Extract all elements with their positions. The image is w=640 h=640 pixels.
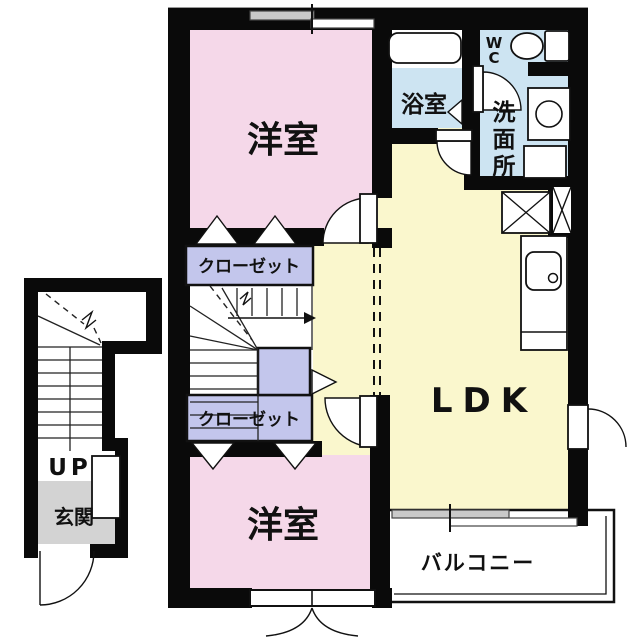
toilet-tank-icon <box>545 31 569 61</box>
wall-bottom-left <box>168 588 252 608</box>
ldk-exit-doorway <box>568 405 588 449</box>
ldk-label: LDK <box>431 381 537 421</box>
floor-plan-canvas: 洋室 洋室 LDK 浴室 W C 洗 面 所 クローゼット クローゼット バルコ… <box>0 0 640 640</box>
bedroom-top-label: 洋室 <box>247 120 319 161</box>
washroom-door-leaf <box>473 66 483 112</box>
washroom-label-1: 洗 <box>493 100 516 126</box>
shoe-cabinet-icon <box>92 456 120 518</box>
bath-label: 浴室 <box>401 91 447 118</box>
washroom-label-2: 面 <box>493 127 516 153</box>
wall-left <box>168 8 190 608</box>
balcony-label: バルコニー <box>421 551 536 575</box>
toilet-bowl-icon <box>511 33 543 59</box>
kitchen-counter <box>521 236 567 350</box>
window-bottom-swing-right <box>312 608 358 636</box>
wall-bedroomtop-right <box>372 8 392 198</box>
wall-bath-bottom <box>386 128 438 144</box>
hall-door-leaf <box>436 130 472 141</box>
ldk-exit-door-arc <box>588 409 626 447</box>
washing-machine-icon <box>528 88 570 140</box>
wc-label-c: C <box>488 49 499 67</box>
storage-box <box>258 348 310 395</box>
balcony-slider-panel-b <box>450 518 577 526</box>
entrance-label: 玄関 <box>54 505 94 529</box>
window-bottom-swing-left <box>266 608 312 636</box>
closet-top-label: クローゼット <box>198 256 300 277</box>
pipe-space <box>553 187 571 233</box>
wall-wc-bottom <box>528 62 572 76</box>
window-top-panel-b <box>311 19 374 28</box>
floor-plan-svg: 洋室 洋室 LDK 浴室 W C 洗 面 所 クローゼット クローゼット バルコ… <box>0 0 640 640</box>
bedroom-bottom-door-leaf <box>360 396 377 447</box>
bedroom-bottom-label: 洋室 <box>247 505 319 546</box>
entrance-building <box>24 278 162 605</box>
entrance-doorway <box>38 544 90 558</box>
closet-bottom-label: クローゼット <box>198 409 300 430</box>
bathtub-icon <box>389 33 461 63</box>
bedroom-top-door-leaf <box>360 194 377 243</box>
window-top-panel-a <box>250 11 314 20</box>
vanity-icon <box>524 146 566 178</box>
entrance-door-arc <box>40 551 94 605</box>
washroom-label-3: 所 <box>493 154 516 180</box>
up-label: UP <box>48 455 92 481</box>
